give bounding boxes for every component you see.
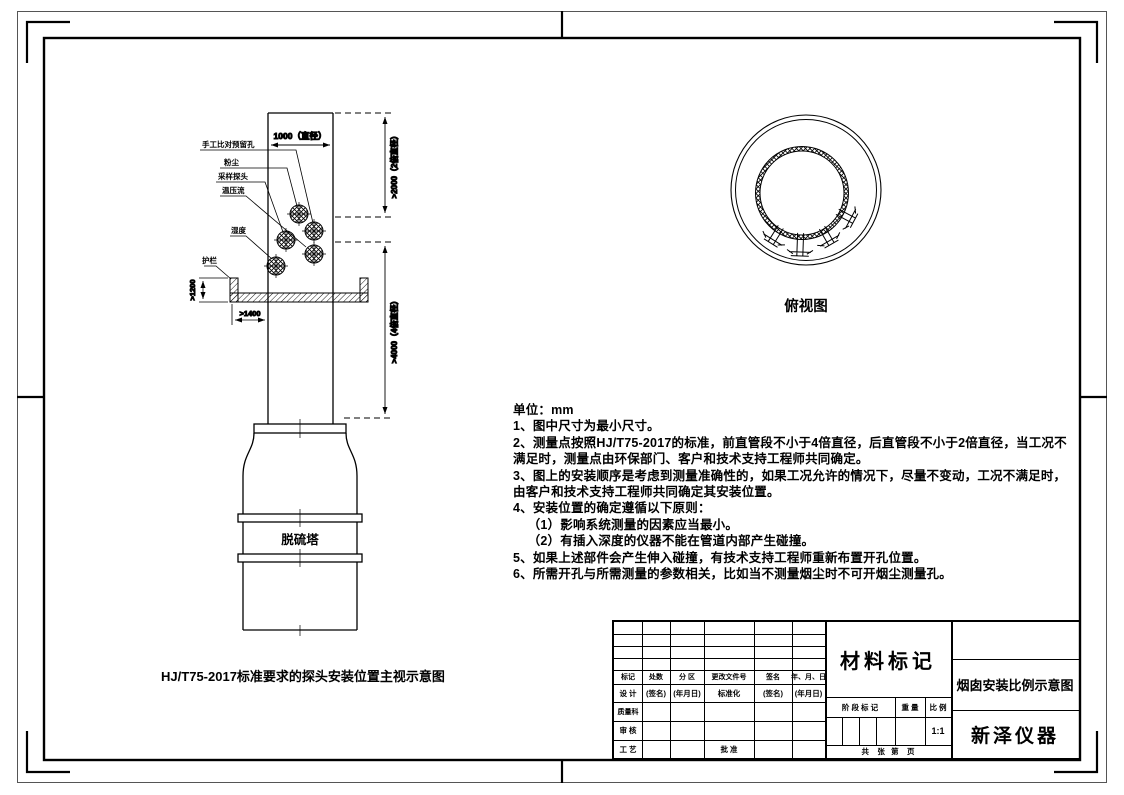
tb-check: 审 核 <box>614 721 642 740</box>
tb-rev-sign: 签名 <box>754 670 792 684</box>
tower <box>238 419 362 636</box>
dim-upstream: >2000（2倍直径） <box>389 132 399 199</box>
tb-standardization: 标准化 <box>704 684 754 702</box>
tb-rev-mark: 标记 <box>614 670 642 684</box>
measurement-ports <box>264 202 326 278</box>
tb-scale-value: 1:1 <box>925 717 951 745</box>
top-view: 俯视图 <box>731 115 881 315</box>
platform <box>230 278 368 302</box>
tb-pages: 共 张 第 页 <box>825 745 951 758</box>
tb-rev-zone: 分 区 <box>670 670 704 684</box>
tb-approve: 批 准 <box>704 740 754 758</box>
note-line: 4、安装位置的确定遵循以下原则： <box>513 500 1067 516</box>
tb-rev-doc: 更改文件号 <box>704 670 754 684</box>
tb-stage-label: 阶 段 标 记 <box>825 697 895 717</box>
tb-rev-count: 处数 <box>642 670 670 684</box>
note-line: （1）影响系统测量的因素应当最小。 <box>513 517 1067 533</box>
tb-drawing-title: 烟囱安装比例示意图 <box>951 659 1079 710</box>
installation-notes: 单位：mm 1、图中尺寸为最小尺寸。 2、测量点按照HJ/T75-2017的标准… <box>513 402 1067 582</box>
tb-scale-label: 比 例 <box>925 697 951 717</box>
tb-company: 新泽仪器 <box>951 710 1079 758</box>
dim-rail-height: >1200 <box>188 279 197 300</box>
tb-standardization-sign: (签名) <box>754 684 792 702</box>
drawing-sheet: 1000（直径） >2000（2倍直径） >4000（4倍直径） 手工比对预留孔… <box>0 0 1124 795</box>
front-view-caption: HJ/T75-2017标准要求的探头安装位置主视示意图 <box>161 669 445 684</box>
label-dust: 粉尘 <box>224 157 239 167</box>
tb-design-sign: (签名) <box>642 684 670 702</box>
dim-downstream: >4000（4倍直径） <box>389 297 399 364</box>
label-humidity: 湿度 <box>231 225 246 235</box>
note-line: 满足时，测量点由环保部门、客户和技术支持工程师共同确定。 <box>513 451 1067 467</box>
tb-craft: 工 艺 <box>614 740 642 758</box>
tower-label: 脱硫塔 <box>281 532 319 547</box>
label-temp-press-flow: 温压流 <box>222 185 245 195</box>
note-line: 2、测量点按照HJ/T75-2017的标准，前直管段不小于4倍直径，后直管段不小… <box>513 435 1067 451</box>
tb-dept: 质量科 <box>614 702 642 721</box>
note-line: 5、如果上述部件会产生伸入碰撞，有技术支持工程师重新布置开孔位置。 <box>513 550 1067 566</box>
title-block: 标记 处数 分 区 更改文件号 签名 年、月、日 设 计 (签名) (年月日) … <box>612 620 1081 760</box>
tb-design-date: (年月日) <box>670 684 704 702</box>
tb-weight-label: 重 量 <box>895 697 925 717</box>
tb-rev-date: 年、月、日 <box>792 670 825 684</box>
note-line: 3、图上的安装顺序是考虑到测量准确性的，如果工况允许的情况下，尽量不变动，工况不… <box>513 468 1067 484</box>
front-view: 1000（直径） >2000（2倍直径） >4000（4倍直径） 手工比对预留孔… <box>161 113 445 684</box>
note-line: 1、图中尺寸为最小尺寸。 <box>513 418 1067 434</box>
note-line: （2）有插入深度的仪器不能在管道内部产生碰撞。 <box>513 533 1067 549</box>
top-view-caption: 俯视图 <box>784 297 828 315</box>
label-probe: 采样探头 <box>217 171 248 181</box>
note-line: 由客户和技术支持工程师共同确定其安装位置。 <box>513 484 1067 500</box>
note-line: 6、所需开孔与所需测量的参数相关，比如当不测量烟尘时不可开烟尘测量孔。 <box>513 566 1067 582</box>
tb-design: 设 计 <box>614 684 642 702</box>
dim-platform-width: >1400 <box>239 309 260 318</box>
label-manual-hole: 手工比对预留孔 <box>202 139 255 149</box>
label-guardrail: 护栏 <box>202 255 217 265</box>
tb-standardization-date: (年月日) <box>792 684 825 702</box>
tb-material-mark: 材料标记 <box>825 622 951 697</box>
dim-diameter: 1000（直径） <box>274 131 327 141</box>
note-line: 单位：mm <box>513 402 1067 418</box>
